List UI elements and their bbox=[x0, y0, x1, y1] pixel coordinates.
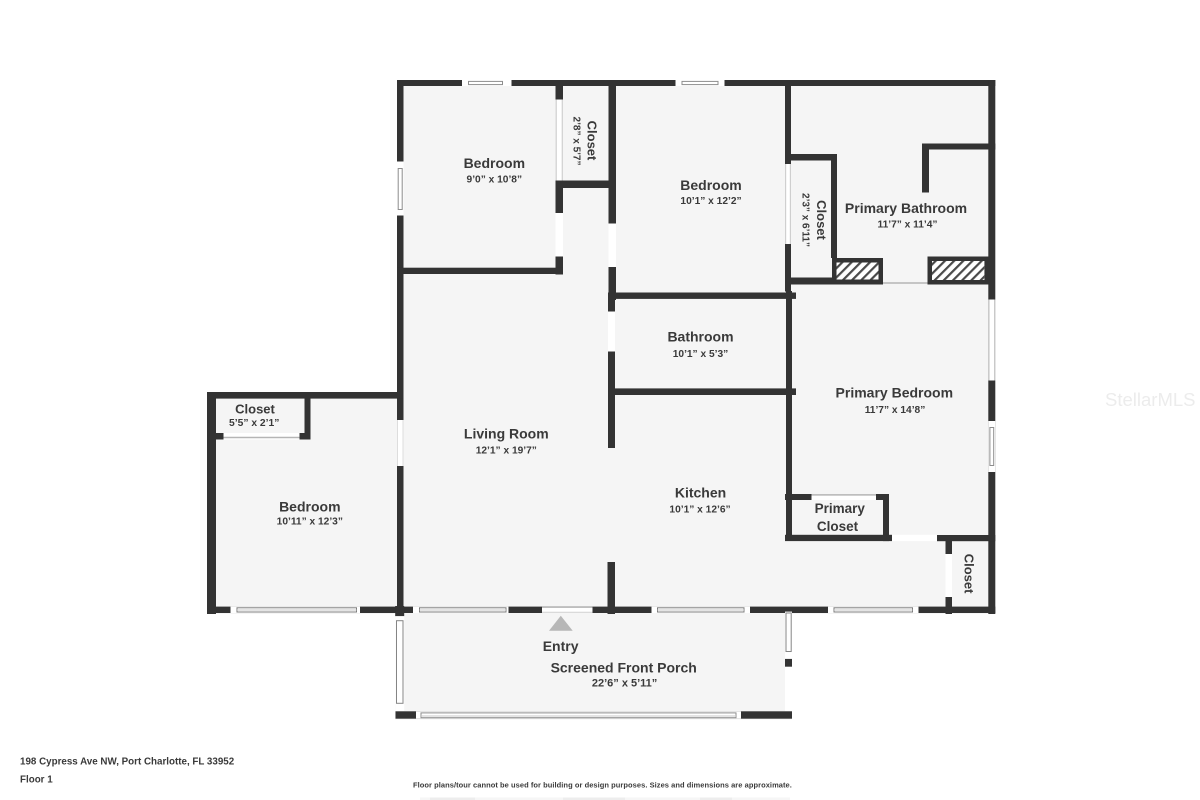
svg-text:Primary Bedroom: Primary Bedroom bbox=[836, 385, 953, 401]
svg-text:10’1” x 5’3”: 10’1” x 5’3” bbox=[673, 349, 729, 360]
svg-text:198 Cypress Ave NW, Port Charl: 198 Cypress Ave NW, Port Charlotte, FL 3… bbox=[20, 756, 235, 767]
svg-text:22’6” x 5’11”: 22’6” x 5’11” bbox=[592, 677, 657, 689]
svg-text:11’7” x 11’4”: 11’7” x 11’4” bbox=[877, 220, 937, 231]
svg-text:10’1” x 12’2”: 10’1” x 12’2” bbox=[680, 196, 741, 207]
svg-text:Primary: Primary bbox=[815, 501, 866, 516]
svg-text:Living Room: Living Room bbox=[464, 426, 549, 442]
svg-text:Closet: Closet bbox=[814, 200, 829, 240]
svg-text:10’1” x 12’6”: 10’1” x 12’6” bbox=[669, 505, 730, 516]
svg-text:Bedroom: Bedroom bbox=[680, 177, 741, 193]
svg-text:9’0” x 10’8”: 9’0” x 10’8” bbox=[467, 175, 523, 186]
svg-text:Entry: Entry bbox=[543, 638, 579, 654]
svg-text:Closet: Closet bbox=[961, 554, 976, 594]
svg-text:Closet: Closet bbox=[585, 121, 600, 161]
svg-text:Floor plans/tour cannot be use: Floor plans/tour cannot be used for buil… bbox=[413, 780, 792, 789]
svg-text:StellarMLS: StellarMLS bbox=[1105, 389, 1195, 410]
svg-text:Bedroom: Bedroom bbox=[279, 498, 340, 514]
svg-text:Floor 1: Floor 1 bbox=[20, 775, 53, 786]
svg-text:5’5” x 2’1”: 5’5” x 2’1” bbox=[229, 418, 279, 429]
svg-text:Primary Bathroom: Primary Bathroom bbox=[845, 200, 967, 216]
svg-text:Closet: Closet bbox=[817, 519, 859, 534]
svg-text:2’8” x 5’7”: 2’8” x 5’7” bbox=[571, 117, 582, 166]
svg-text:Closet: Closet bbox=[235, 402, 275, 417]
svg-text:Bathroom: Bathroom bbox=[667, 329, 733, 345]
svg-text:10’11” x 12’3”: 10’11” x 12’3” bbox=[277, 517, 343, 528]
svg-text:11’7” x 14’8”: 11’7” x 14’8” bbox=[865, 405, 926, 416]
svg-text:Screened Front Porch: Screened Front Porch bbox=[551, 659, 697, 675]
svg-text:2’3” x 6’11”: 2’3” x 6’11” bbox=[800, 193, 811, 247]
svg-text:Bedroom: Bedroom bbox=[464, 155, 525, 171]
svg-text:Kitchen: Kitchen bbox=[675, 485, 726, 501]
svg-text:12’1” x 19’7”: 12’1” x 19’7” bbox=[476, 446, 537, 457]
